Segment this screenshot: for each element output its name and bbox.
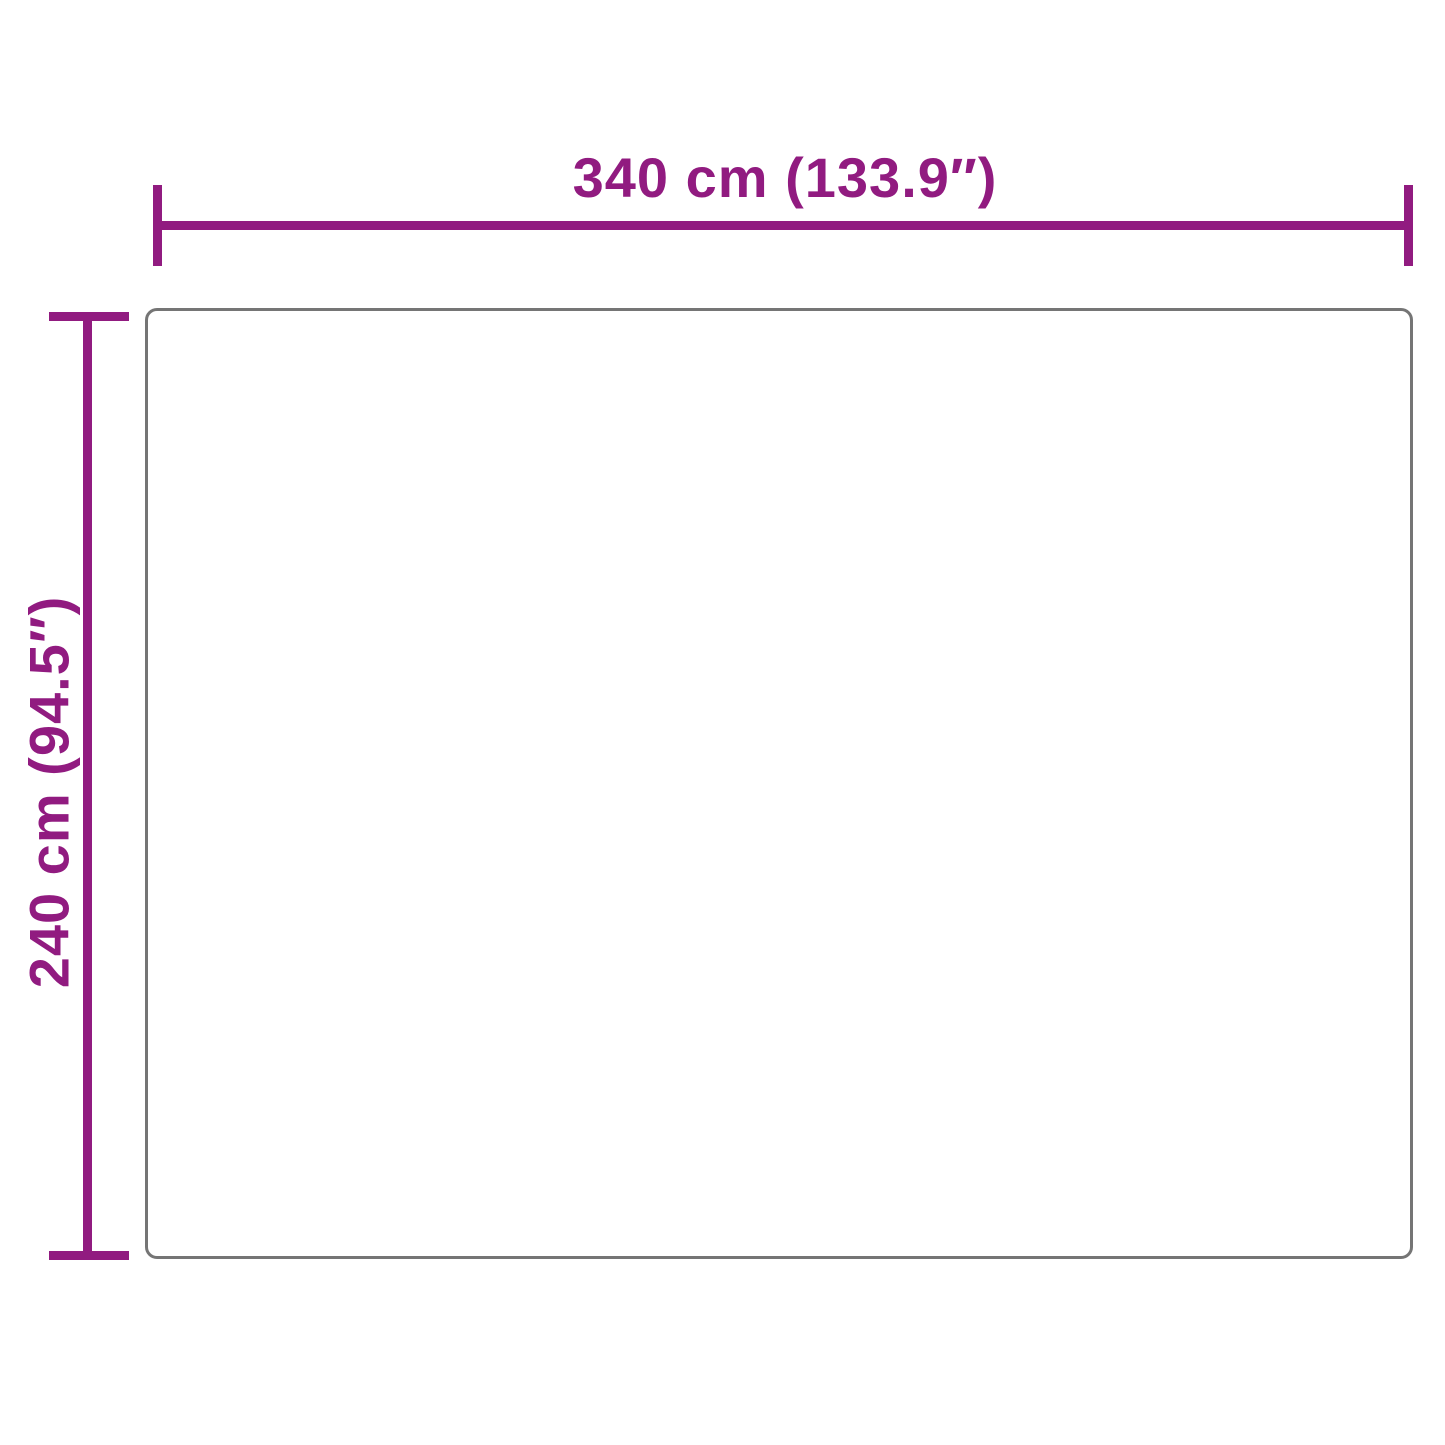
height-dimension-line	[83, 312, 92, 1260]
height-dimension-bottom-tick	[49, 1251, 129, 1260]
width-dimension-label: 340 cm (133.9″)	[157, 144, 1413, 210]
height-dimension-label: 240 cm (94.5″)	[17, 596, 82, 989]
height-dimension-top-tick	[49, 312, 129, 321]
dimension-diagram: 340 cm (133.9″) 240 cm (94.5″)	[0, 0, 1445, 1445]
width-dimension-line	[157, 221, 1413, 230]
product-outline-rect	[145, 308, 1413, 1259]
